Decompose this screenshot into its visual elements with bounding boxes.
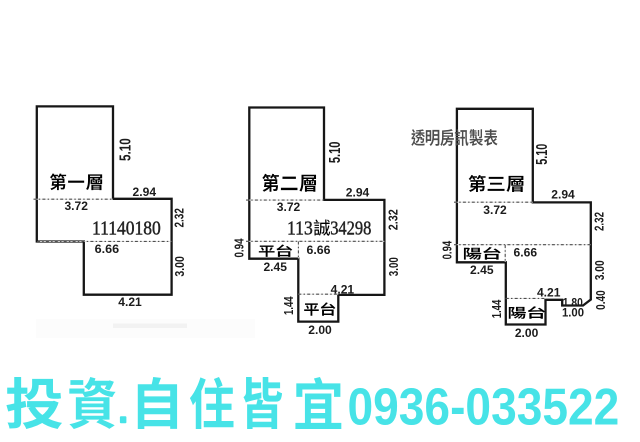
svg-text:3.00: 3.00 (172, 256, 187, 277)
svg-text:2.45: 2.45 (470, 263, 494, 277)
svg-text:1.00: 1.00 (562, 306, 584, 320)
svg-text:3.72: 3.72 (277, 200, 301, 214)
svg-text:5.10: 5.10 (327, 142, 344, 164)
svg-text:2.32: 2.32 (385, 209, 400, 230)
svg-text:3.72: 3.72 (483, 203, 507, 217)
svg-text:34298: 34298 (330, 218, 371, 240)
svg-text:6.66: 6.66 (307, 243, 331, 257)
svg-text:4.21: 4.21 (537, 285, 561, 299)
svg-text:5.10: 5.10 (117, 138, 134, 161)
svg-text:0.94: 0.94 (232, 238, 247, 258)
svg-text:1.44: 1.44 (281, 296, 296, 315)
svg-text:0.94: 0.94 (439, 240, 454, 259)
svg-text:3.00: 3.00 (592, 260, 607, 280)
svg-text:2.32: 2.32 (592, 212, 607, 231)
svg-text:11140180: 11140180 (92, 218, 161, 240)
svg-text:3.00: 3.00 (386, 257, 401, 276)
svg-text:2.00: 2.00 (308, 323, 332, 337)
svg-text:6.66: 6.66 (95, 242, 120, 256)
svg-text:0.40: 0.40 (593, 290, 608, 310)
svg-text:0936-033522: 0936-033522 (348, 379, 620, 437)
svg-text:2.94: 2.94 (551, 188, 575, 202)
svg-text:5.10: 5.10 (534, 144, 551, 165)
svg-text:6.66: 6.66 (514, 246, 538, 260)
svg-text:2.94: 2.94 (133, 185, 157, 199)
svg-text:2.94: 2.94 (346, 186, 370, 200)
svg-text:1.44: 1.44 (489, 299, 504, 318)
svg-text:2.00: 2.00 (515, 326, 539, 340)
svg-text:4.21: 4.21 (331, 282, 355, 296)
svg-text:4.21: 4.21 (118, 295, 142, 309)
svg-text:113: 113 (287, 218, 313, 240)
svg-text:2.32: 2.32 (171, 208, 186, 228)
svg-text:3.72: 3.72 (64, 199, 88, 213)
svg-text:2.45: 2.45 (263, 260, 287, 274)
